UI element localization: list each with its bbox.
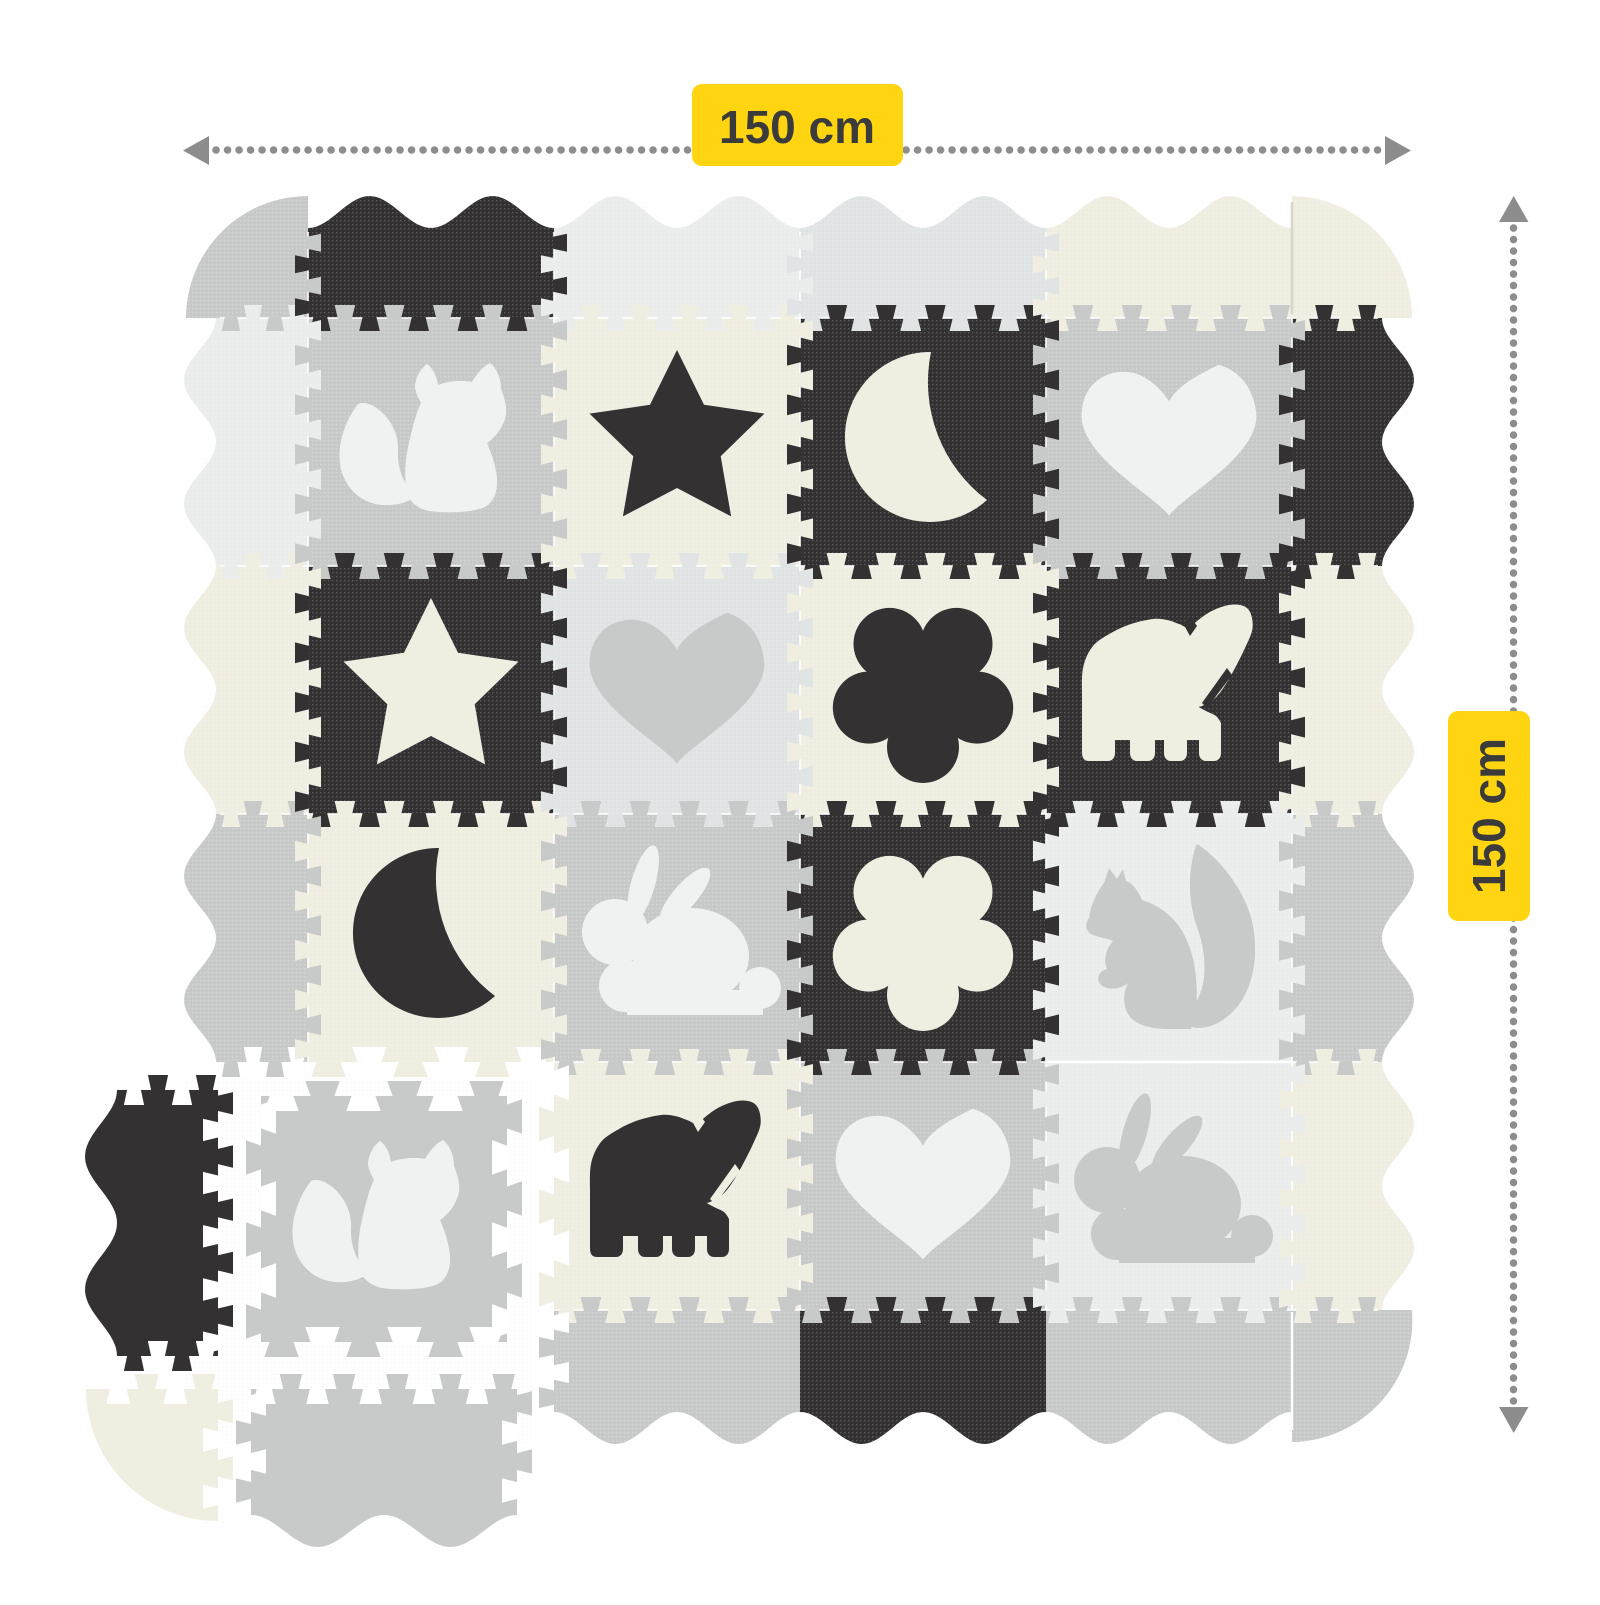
- svg-text:150 cm: 150 cm: [1463, 738, 1515, 894]
- svg-text:150 cm: 150 cm: [719, 101, 875, 153]
